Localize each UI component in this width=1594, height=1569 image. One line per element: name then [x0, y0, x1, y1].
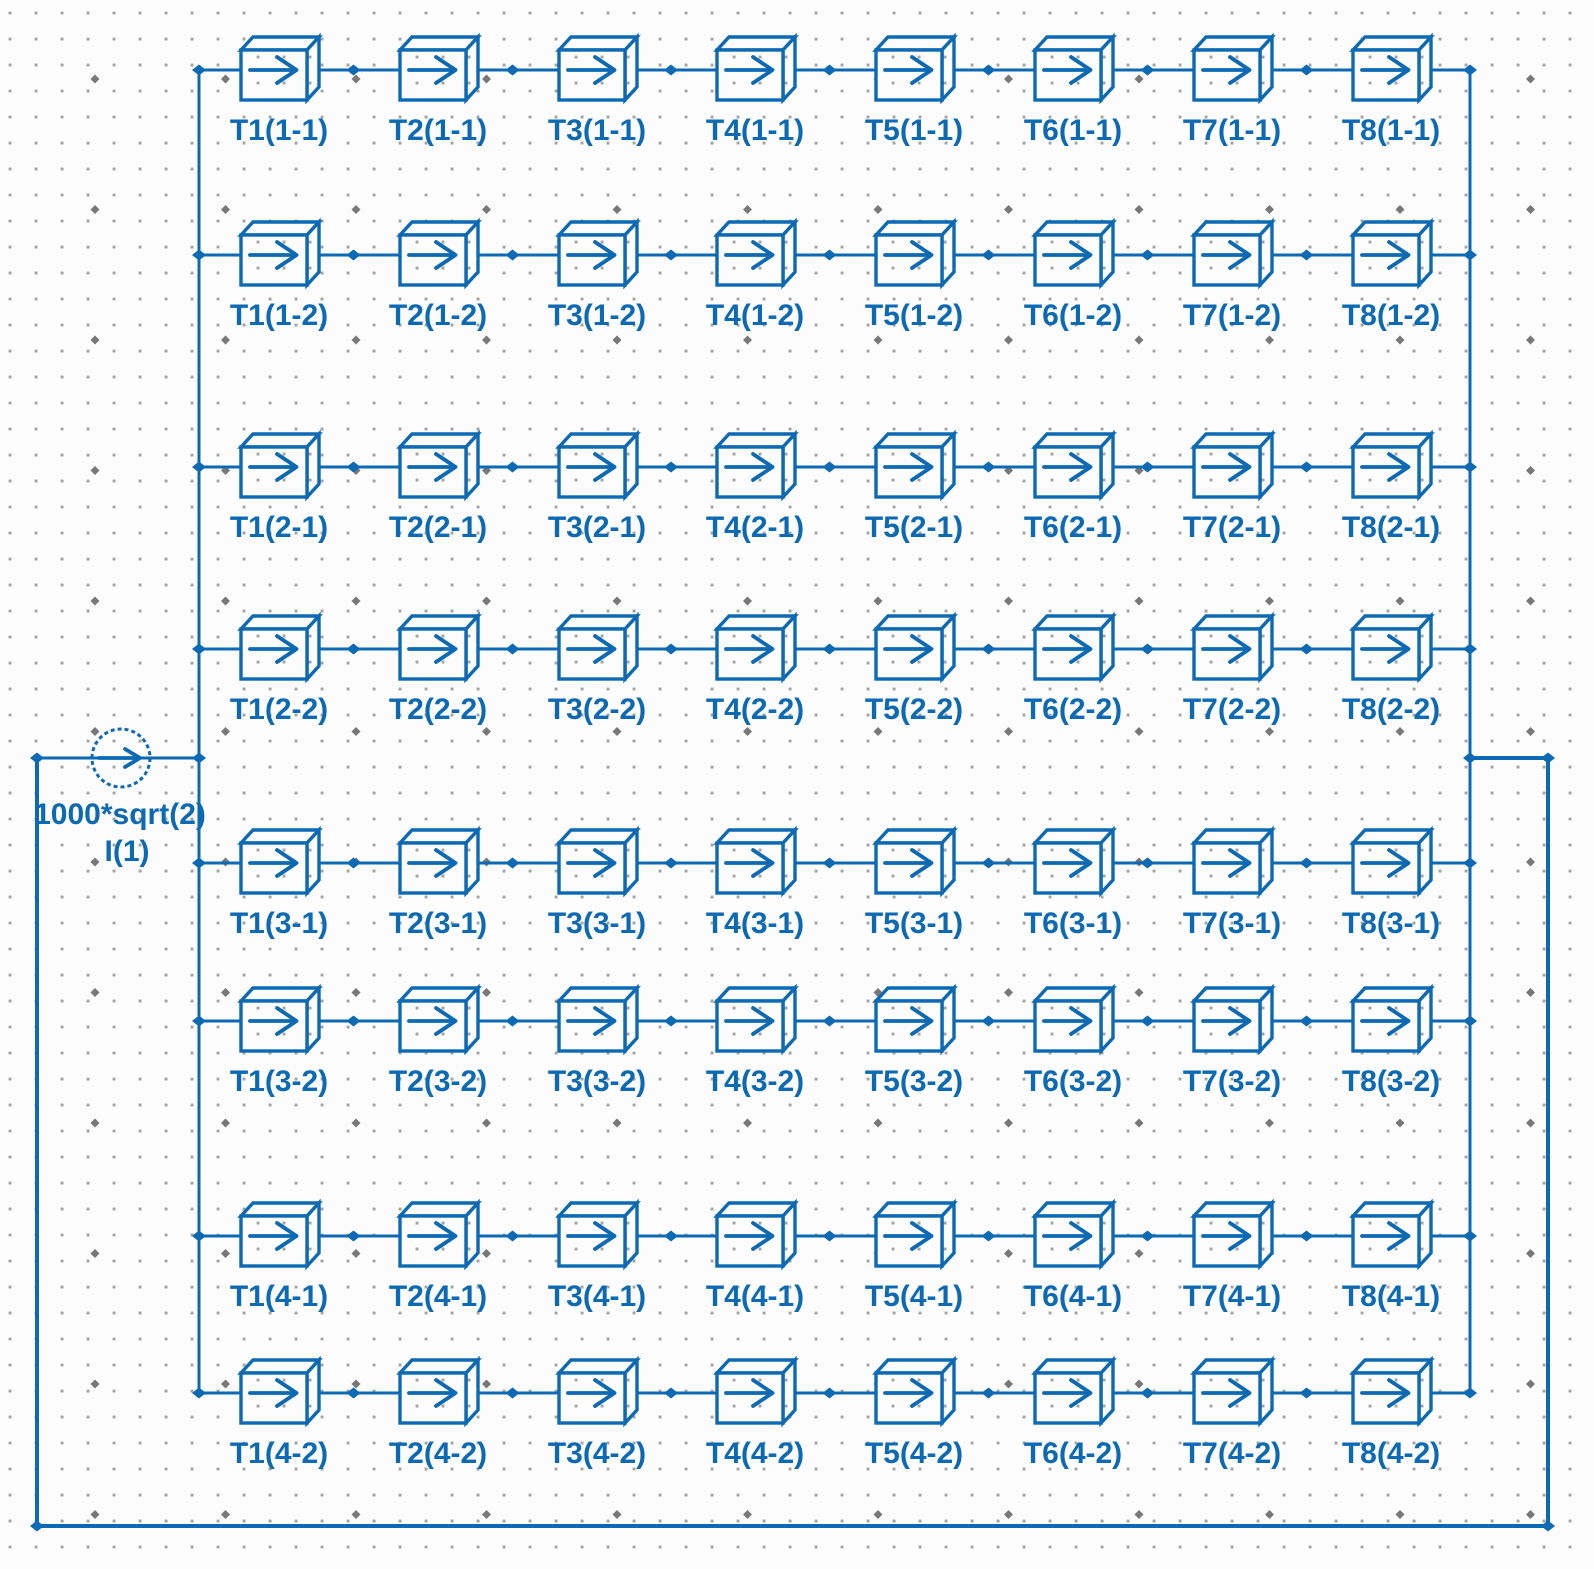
block-label: T8(1-1) — [1342, 114, 1440, 147]
transformer-block[interactable] — [876, 988, 954, 1051]
block-label: T1(3-1) — [230, 907, 328, 940]
transformer-block[interactable] — [717, 830, 795, 893]
transformer-block[interactable] — [241, 434, 319, 497]
block-label: T3(3-1) — [548, 907, 646, 940]
transformer-block[interactable] — [400, 1203, 478, 1266]
block-label: T3(4-1) — [548, 1280, 646, 1313]
block-label: T2(1-2) — [389, 299, 487, 332]
transformer-block[interactable] — [1353, 37, 1431, 100]
transformer-block[interactable] — [1353, 830, 1431, 893]
transformer-block[interactable] — [1194, 616, 1272, 679]
transformer-block[interactable] — [1353, 222, 1431, 285]
transformer-block[interactable] — [400, 830, 478, 893]
block-label: T8(4-2) — [1342, 1437, 1440, 1470]
transformer-block[interactable] — [876, 434, 954, 497]
transformer-block[interactable] — [1194, 1360, 1272, 1423]
block-label: T7(3-1) — [1183, 907, 1281, 940]
transformer-block[interactable] — [1353, 616, 1431, 679]
transformer-block[interactable] — [1035, 222, 1113, 285]
block-label: T2(2-1) — [389, 511, 487, 544]
block-label: T3(4-2) — [548, 1437, 646, 1470]
transformer-block[interactable] — [1353, 434, 1431, 497]
transformer-block[interactable] — [1035, 616, 1113, 679]
transformer-block[interactable] — [400, 988, 478, 1051]
transformer-block[interactable] — [241, 1203, 319, 1266]
transformer-block[interactable] — [876, 37, 954, 100]
transformer-block[interactable] — [559, 616, 637, 679]
block-label: T1(4-1) — [230, 1280, 328, 1313]
block-label: T2(3-2) — [389, 1065, 487, 1098]
block-label: T3(3-2) — [548, 1065, 646, 1098]
block-label: T5(3-2) — [865, 1065, 963, 1098]
block-label: T7(3-2) — [1183, 1065, 1281, 1098]
block-label: T8(1-2) — [1342, 299, 1440, 332]
block-label: T8(2-2) — [1342, 693, 1440, 726]
block-label: T6(3-2) — [1024, 1065, 1122, 1098]
source-name-label: I(1) — [105, 835, 150, 868]
schematic-svg: T1(1-1)T2(1-1)T3(1-1)T4(1-1)T5(1-1)T6(1-… — [0, 0, 1594, 1569]
transformer-block[interactable] — [241, 37, 319, 100]
transformer-block[interactable] — [717, 222, 795, 285]
block-label: T6(4-2) — [1024, 1437, 1122, 1470]
transformer-block[interactable] — [1194, 988, 1272, 1051]
block-label: T7(4-1) — [1183, 1280, 1281, 1313]
transformer-block[interactable] — [717, 1360, 795, 1423]
transformer-block[interactable] — [1353, 1203, 1431, 1266]
block-label: T6(2-1) — [1024, 511, 1122, 544]
transformer-block[interactable] — [1194, 434, 1272, 497]
transformer-block[interactable] — [559, 222, 637, 285]
transformer-block[interactable] — [400, 1360, 478, 1423]
block-label: T4(2-2) — [706, 693, 804, 726]
transformer-block[interactable] — [559, 830, 637, 893]
schematic-canvas: T1(1-1)T2(1-1)T3(1-1)T4(1-1)T5(1-1)T6(1-… — [0, 0, 1594, 1569]
transformer-block[interactable] — [1353, 988, 1431, 1051]
block-label: T1(2-1) — [230, 511, 328, 544]
block-label: T5(2-2) — [865, 693, 963, 726]
transformer-block[interactable] — [559, 1360, 637, 1423]
block-label: T3(2-1) — [548, 511, 646, 544]
transformer-block[interactable] — [241, 1360, 319, 1423]
transformer-block[interactable] — [241, 616, 319, 679]
transformer-block[interactable] — [876, 1203, 954, 1266]
block-label: T8(3-2) — [1342, 1065, 1440, 1098]
transformer-block[interactable] — [400, 616, 478, 679]
block-label: T5(3-1) — [865, 907, 963, 940]
transformer-block[interactable] — [241, 988, 319, 1051]
block-label: T4(2-1) — [706, 511, 804, 544]
transformer-block[interactable] — [1035, 37, 1113, 100]
block-label: T4(3-2) — [706, 1065, 804, 1098]
block-label: T1(2-2) — [230, 693, 328, 726]
transformer-block[interactable] — [717, 616, 795, 679]
transformer-block[interactable] — [1035, 988, 1113, 1051]
block-label: T7(1-2) — [1183, 299, 1281, 332]
transformer-block[interactable] — [1194, 222, 1272, 285]
block-label: T7(2-2) — [1183, 693, 1281, 726]
block-label: T6(1-1) — [1024, 114, 1122, 147]
block-label: T5(4-2) — [865, 1437, 963, 1470]
transformer-block[interactable] — [1353, 1360, 1431, 1423]
block-label: T5(1-2) — [865, 299, 963, 332]
transformer-block[interactable] — [1035, 434, 1113, 497]
block-label: T4(4-1) — [706, 1280, 804, 1313]
transformer-block[interactable] — [1194, 1203, 1272, 1266]
transformer-block[interactable] — [1035, 1360, 1113, 1423]
transformer-block[interactable] — [559, 434, 637, 497]
block-label: T4(1-2) — [706, 299, 804, 332]
transformer-block[interactable] — [241, 222, 319, 285]
block-label: T2(1-1) — [389, 114, 487, 147]
block-label: T1(3-2) — [230, 1065, 328, 1098]
transformer-block[interactable] — [717, 434, 795, 497]
transformer-block[interactable] — [1194, 830, 1272, 893]
block-label: T5(2-1) — [865, 511, 963, 544]
block-label: T6(1-2) — [1024, 299, 1122, 332]
block-label: T6(2-2) — [1024, 693, 1122, 726]
transformer-block[interactable] — [876, 222, 954, 285]
transformer-block[interactable] — [400, 37, 478, 100]
block-label: T3(2-2) — [548, 693, 646, 726]
transformer-block[interactable] — [717, 988, 795, 1051]
block-label: T6(3-1) — [1024, 907, 1122, 940]
transformer-block[interactable] — [559, 1203, 637, 1266]
block-label: T3(1-2) — [548, 299, 646, 332]
block-label: T2(2-2) — [389, 693, 487, 726]
block-label: T8(3-1) — [1342, 907, 1440, 940]
transformer-block[interactable] — [559, 988, 637, 1051]
transformer-block[interactable] — [876, 616, 954, 679]
block-label: T3(1-1) — [548, 114, 646, 147]
transformer-block[interactable] — [876, 830, 954, 893]
source-value-label: 1000*sqrt(2) — [34, 798, 206, 831]
block-label: T8(4-1) — [1342, 1280, 1440, 1313]
block-label: T8(2-1) — [1342, 511, 1440, 544]
transformer-block[interactable] — [717, 1203, 795, 1266]
block-label: T1(4-2) — [230, 1437, 328, 1470]
transformer-block[interactable] — [559, 37, 637, 100]
block-label: T2(4-2) — [389, 1437, 487, 1470]
transformer-block[interactable] — [1035, 1203, 1113, 1266]
transformer-block[interactable] — [400, 434, 478, 497]
block-label: T1(1-2) — [230, 299, 328, 332]
block-label: T7(2-1) — [1183, 511, 1281, 544]
transformer-block[interactable] — [400, 222, 478, 285]
transformer-block[interactable] — [717, 37, 795, 100]
transformer-block[interactable] — [241, 830, 319, 893]
transformer-block[interactable] — [1194, 37, 1272, 100]
block-label: T2(3-1) — [389, 907, 487, 940]
block-label: T6(4-1) — [1024, 1280, 1122, 1313]
block-label: T4(3-1) — [706, 907, 804, 940]
block-label: T1(1-1) — [230, 114, 328, 147]
block-label: T2(4-1) — [389, 1280, 487, 1313]
block-label: T7(1-1) — [1183, 114, 1281, 147]
transformer-block[interactable] — [876, 1360, 954, 1423]
block-label: T7(4-2) — [1183, 1437, 1281, 1470]
block-label: T4(4-2) — [706, 1437, 804, 1470]
block-label: T4(1-1) — [706, 114, 804, 147]
block-label: T5(4-1) — [865, 1280, 963, 1313]
block-label: T5(1-1) — [865, 114, 963, 147]
transformer-block[interactable] — [1035, 830, 1113, 893]
